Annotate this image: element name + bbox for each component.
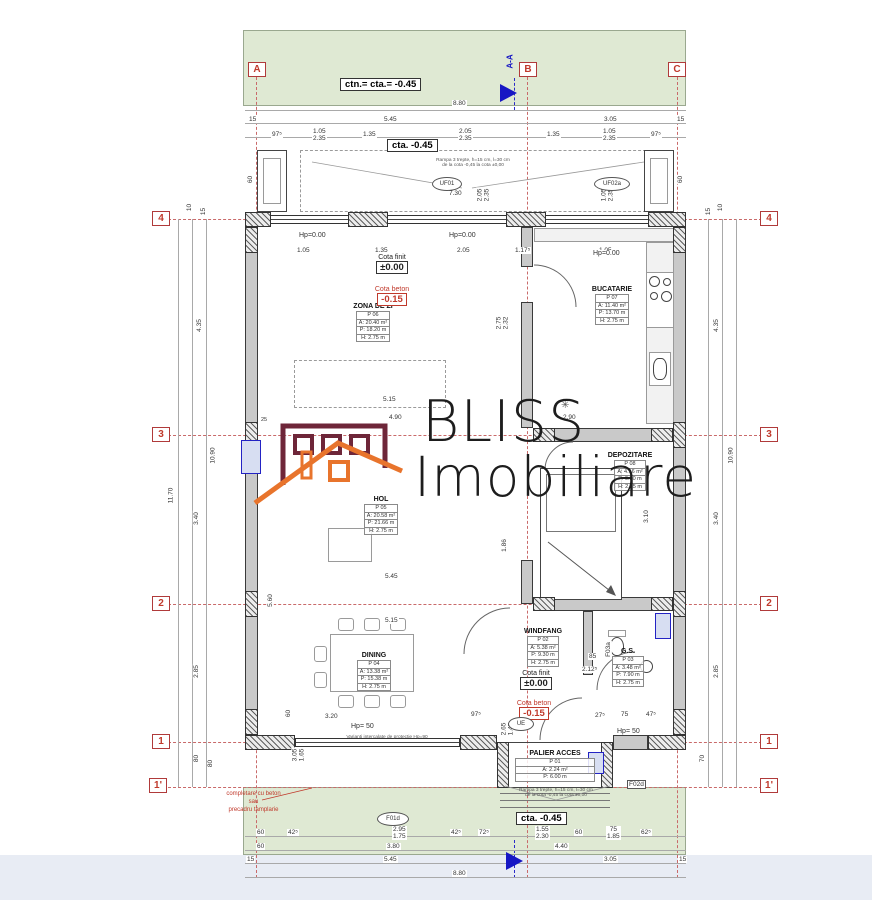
chair [314, 646, 327, 662]
wall-left [245, 227, 258, 735]
room-perimeter: P: 15.38 m [357, 676, 390, 684]
dim-label: 42⁵ [287, 829, 299, 836]
sink-basin-icon [653, 358, 667, 380]
wall-node [651, 597, 673, 611]
room-no: P 03 [613, 657, 643, 665]
room-area: A: 20.40 m² [356, 319, 389, 327]
room-area: A: 20.58 m² [364, 512, 397, 520]
dim-label: 3.20 [324, 713, 339, 720]
dim-label: 1.05 [313, 128, 326, 135]
cota-finit-zona: Cota finit ±0.00 [352, 254, 432, 274]
wall-corner [245, 212, 271, 227]
room-no: P 06 [356, 312, 389, 320]
dim-label: 15 [246, 856, 255, 863]
kitchen-counter-top [534, 228, 674, 242]
grid-bubble-b: B [519, 62, 537, 77]
dim-label: 2.32 [502, 317, 509, 330]
room-no: P 04 [357, 661, 390, 669]
level-label-ctn: ctn.= cta.= -0.45 [340, 78, 421, 91]
grid-bubble-a: A [248, 62, 266, 77]
room-no: P 08 [615, 461, 645, 469]
dim-label: 3.05 [603, 856, 618, 863]
wall-right [673, 227, 686, 735]
linework-layer [0, 0, 872, 900]
wall-pier [348, 212, 388, 227]
cota-finit-value: ±0.00 [376, 261, 408, 274]
room-perimeter: P: 7.90 m [613, 672, 643, 680]
cota-beton-label: Cota beton [517, 700, 551, 707]
step-line [500, 807, 610, 808]
dim-label: 97⁵ [470, 711, 482, 718]
dim-label: 2.05 [476, 189, 483, 202]
sofa-outline [294, 360, 446, 408]
room-title: DEPOZITARE [592, 452, 668, 459]
wall-corner [245, 735, 295, 750]
room-height: H: 2.75 m [615, 483, 645, 491]
dim-label: 60 [677, 175, 684, 184]
grid-bubble-2r: 2 [760, 596, 778, 611]
grid-bubble-4r: 4 [760, 211, 778, 226]
dim-label: 3.80 [386, 843, 401, 850]
room-zona-de-zi: ZONA DE ZI P 06 A: 20.40 m² P: 18.20 m H… [338, 303, 408, 342]
dim-label: 60 [285, 709, 292, 718]
dim-label: 3.40 [713, 511, 720, 526]
room-perimeter: P: 9.30 m [528, 652, 558, 660]
dim-label: 1.05 [603, 128, 616, 135]
dim-label: 60 [574, 829, 583, 836]
room-height: H: 2.75 m [364, 527, 397, 535]
dim-label: 1.35 [546, 131, 561, 138]
wall-bottom [613, 735, 648, 750]
kitchen-counter-right [646, 242, 674, 424]
room-height: H: 2.75 m [528, 659, 558, 667]
ramp-note-line2: de la cota -0,45 la cota ±0,00 [525, 793, 587, 798]
grid-bubble-1pr: 1' [760, 778, 778, 793]
cota-beton-zona: Cota beton -0.15 [352, 286, 432, 306]
dim-line [736, 219, 737, 787]
dim-label: 2.35 [603, 135, 616, 142]
room-area: A: 5.38 m² [528, 644, 558, 652]
chair [364, 618, 380, 631]
wall-corner [648, 735, 686, 750]
room-no: P 01 [516, 759, 595, 767]
dim-label: 2.35 [459, 135, 472, 142]
dim-label: 2.75 [495, 317, 502, 330]
dim-label: 75 [620, 711, 629, 718]
dim-label: 7.30 [448, 190, 463, 197]
red-annotation-line2: sau [249, 799, 259, 805]
dim-line [178, 219, 179, 787]
dim-label: 70 [699, 754, 706, 763]
ramp-note-line2: de la cota -0,45 la cota ±0,00 [442, 163, 504, 168]
chair [338, 618, 354, 631]
chair [338, 695, 354, 708]
cota-finit-value: ±0.00 [520, 677, 552, 690]
wall-node [673, 591, 686, 617]
dim-label: 3.05 [291, 749, 298, 762]
window-symbol [241, 440, 261, 474]
grid-bubble-1r: 1 [760, 734, 778, 749]
dim-label: 97⁵ [271, 131, 283, 138]
room-no: P 05 [364, 505, 397, 513]
dim-label: 2.05 [459, 128, 472, 135]
wall-node [245, 591, 258, 617]
dim-label: 2.90 [562, 414, 577, 421]
cota-finit-windfang: Cota finit ±0.00 [504, 670, 568, 690]
dim-line [722, 219, 723, 787]
dim-label: 3.05 [603, 116, 618, 123]
chair [314, 672, 327, 688]
dim-label: 27⁵ [594, 712, 606, 719]
dim-label: 1.65 [298, 749, 305, 762]
opening-tag-f02d: F02d [627, 780, 646, 789]
wall-node [245, 709, 258, 735]
room-windfang: WINDFANG P 02 A: 5.38 m² P: 9.30 m H: 2.… [512, 628, 574, 667]
red-annotation-line3: precadru tamplarie [228, 807, 278, 813]
dim-label: 4.35 [713, 318, 720, 333]
room-title: DINING [338, 652, 410, 659]
room-no: P 07 [595, 295, 628, 303]
opening-tag-uf01: UF01 [432, 177, 462, 191]
dim-label: 15 [705, 207, 712, 216]
grid-bubble-3r: 3 [760, 427, 778, 442]
grid-line-1p [168, 787, 762, 788]
bay-window-right-inner [650, 158, 668, 204]
wall-node [533, 597, 555, 611]
cota-finit-label: Cota finit [378, 254, 406, 261]
wall-corner [648, 212, 686, 227]
wall-pier [506, 212, 546, 227]
dim-label: 60 [247, 175, 254, 184]
window-band-top [258, 215, 673, 224]
grid-bubble-c: C [668, 62, 686, 77]
room-palier-acces: PALIER ACCES P 01 A: 2.24 m² P: 6.00 m [500, 750, 610, 782]
room-depozitare: DEPOZITARE P 08 A: 4.16 m² P: 9.80 m H: … [592, 452, 668, 491]
floor-plan-drawing: A-A A B C 4 3 2 1 1' 4 3 2 1 1' ctn.= ct… [0, 0, 872, 900]
dim-label: 1.85 [607, 833, 620, 840]
dim-label: 2.85 [713, 664, 720, 679]
cota-finit-label: Cota finit [522, 670, 550, 677]
room-perimeter: P: 9.80 m [615, 476, 645, 484]
grid-bubble-1l: 1 [152, 734, 170, 749]
level-label-cta-bottom: cta. -0.45 [516, 812, 567, 825]
bay-window-left-inner [263, 158, 281, 204]
dim-label: 4.35 [196, 318, 203, 333]
room-perimeter: P: 6.00 m [516, 774, 595, 782]
dim-label: 72⁵ [478, 829, 490, 836]
room-area: A: 11.40 m² [595, 302, 628, 310]
dim-label: 1.05 [296, 247, 311, 254]
dim-label: 2.05 [456, 247, 471, 254]
grid-bubble-3l: 3 [152, 427, 170, 442]
dim-label: 5.60 [267, 593, 274, 608]
wall-node [533, 428, 555, 442]
opening-tag-f01d: F01d [377, 812, 409, 826]
ramp-note-top: Rampa 3 trepte, h=15 cm, l=30 cm de la c… [408, 158, 538, 168]
dim-label: 60 [256, 829, 265, 836]
dim-label: 15 [678, 856, 687, 863]
room-area: A: 2.24 m² [516, 766, 595, 774]
wall-node [673, 422, 686, 448]
dim-label: 10.90 [728, 446, 735, 464]
wall-b-segment [521, 302, 533, 428]
dim-label: 2.35 [313, 135, 326, 142]
dim-label: 1.55 [536, 826, 549, 833]
hp-label: Hp=0.00 [298, 232, 327, 239]
dim-label: 2.65 [500, 723, 507, 736]
dim-label: 62⁵ [640, 829, 652, 836]
dim-label: 5.45 [383, 116, 398, 123]
red-annotation: completare cu beton sau precadru tamplar… [196, 790, 311, 814]
level-label-cta-top: cta. -0.45 [387, 139, 438, 152]
burner-icon [661, 291, 672, 302]
dim-line [206, 219, 207, 787]
dim-line [245, 877, 686, 878]
opening-tag-f03a: F03a [605, 641, 612, 658]
wall-pier [460, 735, 497, 750]
dim-label: 1.35 [374, 247, 389, 254]
hp-label: Hp= 50 [616, 728, 641, 735]
cota-beton-windfang: Cota beton -0.15 [502, 700, 566, 720]
dim-label: 5.15 [384, 617, 399, 624]
room-bucatarie: BUCATARIE P 07 A: 11.40 m² P: 13.70 m H:… [576, 286, 648, 325]
dim-label: 2.30 [536, 833, 549, 840]
dim-label: 75 [610, 826, 617, 833]
dim-line [245, 110, 686, 111]
dim-line [245, 850, 686, 851]
dim-label: 1.35 [362, 131, 377, 138]
section-flag-icon [500, 84, 517, 102]
section-flag-icon [506, 852, 523, 870]
dim-line [708, 219, 709, 787]
dim-label: 3.40 [193, 511, 200, 526]
room-dining: DINING P 04 A: 13.38 m² P: 15.38 m H: 2.… [338, 652, 410, 691]
dim-label: 15 [200, 207, 207, 216]
dim-label: 85 [588, 653, 597, 660]
chair [390, 695, 406, 708]
step-line [500, 800, 610, 801]
dim-label: 1.86 [501, 538, 508, 553]
room-hol: HOL P 05 A: 20.58 m² P: 21.66 m H: 2.75 … [346, 496, 416, 535]
dim-label: 15 [248, 116, 257, 123]
dim-label: 47⁵ [645, 711, 657, 718]
burner-icon [663, 278, 671, 286]
dim-label: 2.95 [393, 826, 406, 833]
grid-bubble-2l: 2 [152, 596, 170, 611]
dim-label: 8.80 [452, 100, 467, 107]
room-no: P 02 [528, 637, 558, 645]
room-height: H: 2.75 m [356, 334, 389, 342]
room-height: H: 2.75 m [595, 317, 628, 325]
cota-beton-label: Cota beton [375, 286, 409, 293]
dim-label: 4.40 [554, 843, 569, 850]
burner-icon [650, 292, 658, 300]
room-perimeter: P: 18.20 m [356, 327, 389, 335]
room-height: H: 2.75 m [613, 679, 643, 687]
wall-node [651, 428, 673, 442]
dim-label: 2.35 [483, 189, 490, 202]
wall-node [245, 227, 258, 253]
wall-b-segment [521, 560, 533, 604]
room-area: A: 3.48 m² [613, 664, 643, 672]
wall-node [673, 709, 686, 735]
room-title: WINDFANG [512, 628, 574, 635]
room-perimeter: P: 21.66 m [364, 520, 397, 528]
room-area: A: 13.38 m² [357, 668, 390, 676]
room-title: BUCATARIE [576, 286, 648, 293]
hp-label: Hp=0.00 [448, 232, 477, 239]
dim-label: 11.70 [167, 487, 174, 505]
room-height: H: 2.75 m [357, 683, 390, 691]
room-title: PALIER ACCES [500, 750, 610, 757]
dim-label: 10.90 [210, 446, 217, 464]
ramp-note-palier: Rampa 3 trepte, h=15 cm, l=30 cm de la c… [500, 788, 612, 798]
window-symbol [655, 613, 671, 639]
light-point-icon: ✳ [560, 402, 570, 409]
dim-label: 5.15 [382, 396, 397, 403]
site-green-top [243, 30, 686, 106]
window-protection-note: Varianti intercalate de protectie Hp=90 [322, 735, 452, 740]
red-annotation-line1: completare cu beton [226, 791, 280, 797]
opening-tag-ue: UE [508, 717, 534, 731]
dim-label: 4.90 [388, 414, 403, 421]
section-label: A-A [507, 53, 514, 69]
dim-label: 2.85 [193, 664, 200, 679]
room-perimeter: P: 13.70 m [595, 310, 628, 318]
dim-label: 25 [260, 417, 268, 424]
dim-label: 42⁵ [450, 829, 462, 836]
hp-label: Hp=0.00 [592, 250, 621, 257]
burner-icon [649, 276, 660, 287]
room-title: HOL [346, 496, 416, 503]
wall-node [673, 227, 686, 253]
dim-label: 5.45 [383, 856, 398, 863]
dim-label: 10 [717, 203, 724, 212]
dim-label: 10 [186, 203, 193, 212]
chair [364, 695, 380, 708]
opening-tag-uf02a: UF02a [594, 177, 630, 191]
dim-label: 97⁵ [650, 131, 662, 138]
toilet-tank [608, 630, 626, 637]
dim-label: 2.12⁵ [581, 666, 598, 673]
grid-bubble-1pl: 1' [149, 778, 167, 793]
dim-label: 3.10 [643, 509, 650, 524]
dim-line [245, 863, 686, 864]
room-area: A: 4.16 m² [615, 468, 645, 476]
dim-label: 80 [193, 754, 200, 763]
cota-beton-value: -0.15 [377, 293, 407, 306]
dim-label: 15 [676, 116, 685, 123]
dim-label: 1.17⁵ [514, 247, 531, 254]
dim-line [245, 123, 686, 124]
dim-line [192, 219, 193, 787]
grid-bubble-4l: 4 [152, 211, 170, 226]
dim-label: 80 [207, 759, 214, 768]
dim-label: 1.75 [393, 833, 406, 840]
dim-label: 60 [256, 843, 265, 850]
hp-label: Hp= 50 [350, 723, 375, 730]
dim-label: 5.45 [384, 573, 399, 580]
dim-label: 8.80 [452, 870, 467, 877]
